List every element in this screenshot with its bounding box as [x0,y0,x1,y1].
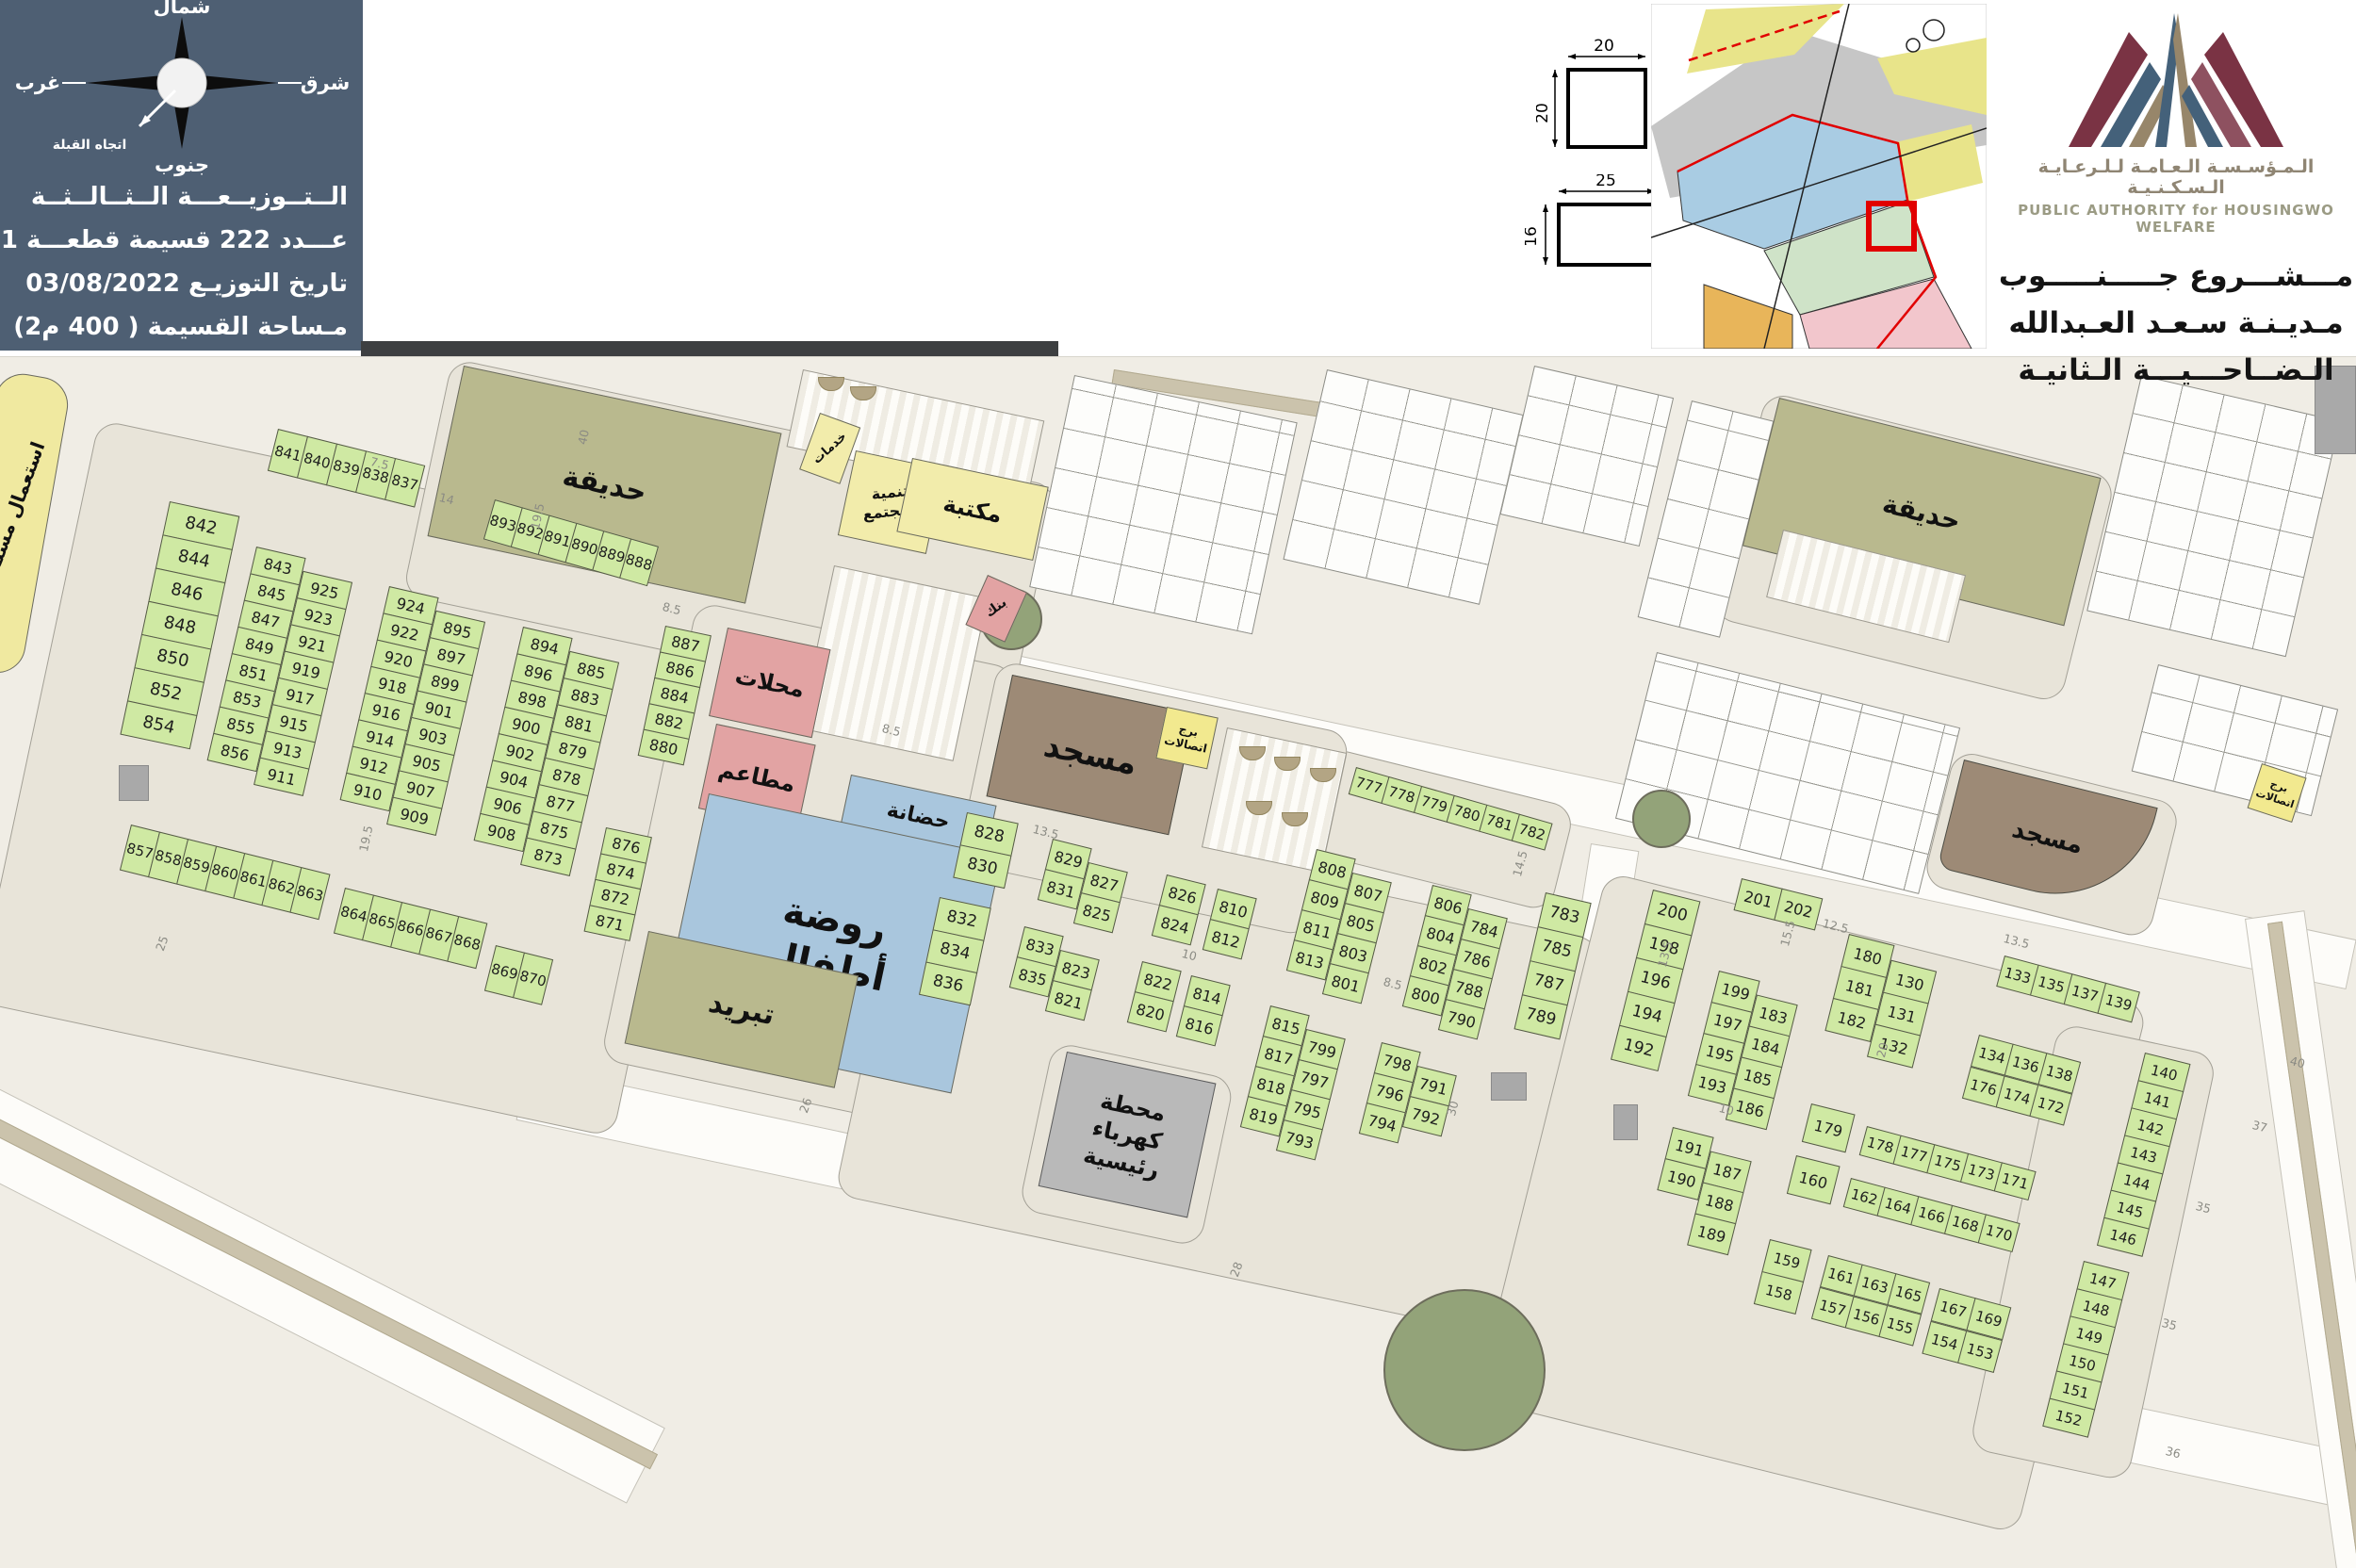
location-inset-map [1651,4,1987,349]
plot-dimension-square: 20 20 [1536,38,1659,160]
nursery-label: حضانة [884,797,952,836]
distribution-info-box: شمال شرق غرب جنوب اتجاه القبلة الــتــوز… [0,0,363,351]
utility-pad-2 [1491,1072,1527,1101]
svg-text:شمال: شمال [154,0,211,18]
telecom-tower-west-label: برجاتصالات [1163,720,1211,757]
distribution-date-line: تاريخ التوزيـع 03/08/2022 [15,262,348,305]
mosque-east-label: مسجد [2009,814,2086,861]
project-title-line3: الـضــاحـــيـــة الـثانيـة [1996,347,2356,394]
roundabout-east [1632,790,1691,848]
plot-area-line: مـساحة القسيمة ( 400 م2) [15,305,348,349]
svg-text:شرق: شرق [301,72,351,94]
pahw-logo-icon [2063,8,2289,149]
svg-text:25: 25 [1595,174,1616,190]
authority-name-en: PUBLIC AUTHORITY for HOUSINGWO WELFARE [1996,202,2356,236]
services-label: خدمات [810,430,850,468]
building-grid-1 [1029,375,1298,634]
svg-text:اتجاه القبلة: اتجاه القبلة [53,138,127,153]
svg-text:16: 16 [1525,226,1541,247]
telecom-tower-east-label: برجاتصالات [2254,775,2300,811]
restaurants-label: مطاعم [716,755,798,798]
svg-text:غرب: غرب [15,72,61,94]
mosque-west-label: مسجد [1040,726,1140,784]
project-title-line2: مـديـنـة سـعـد العـبدالله [1996,300,2356,347]
plot-count-line: عـــدد 222 قسيمة قطعـــة 1 [15,219,348,262]
library-label: مكتبة [941,489,1005,529]
utility-pad-3 [1613,1104,1638,1140]
project-title: مـــشـــروع جـــــنـــــوب مـديـنـة سـعـ… [1996,253,2356,394]
bank-label: بنك [982,596,1010,622]
authority-name-ar: الـمـؤسـسـة الـعـامـة لـلـرعـايـة الـسـك… [1996,156,2356,198]
project-title-line1: مـــشـــروع جـــــنـــــوب [1996,253,2356,300]
zone-telecom-tower-west: برجاتصالات [1155,707,1218,769]
park-east-label: حديقة [1879,486,1964,537]
header-band: شمال شرق غرب جنوب اتجاه القبلة الــتــوز… [0,0,2356,357]
shops-label: محلات [732,661,807,704]
roundabout-south [1383,1289,1546,1451]
distribution-title: الــتــوزيــعـــة الــثــالــثــة [15,175,348,219]
header-divider-bar [361,341,1058,356]
power-station-label: محطةكهرباءرئيسية [1081,1086,1173,1184]
authority-block: الـمـؤسـسـة الـعـامـة لـلـرعـايـة الـسـك… [1996,0,2356,351]
plot-dimension-rect: 25 16 [1525,174,1666,278]
distribution-info-lines: الــتــوزيــعـــة الــثــالــثــة عـــدد… [0,175,363,349]
cooling-label: تبريد [705,986,777,1034]
svg-text:20: 20 [1594,38,1614,56]
park-west-label: حديقة [560,459,650,511]
site-plan-page: استعمال مستقبلي حديقة خدمات تنميةالمجتمع… [0,0,2356,1568]
compass-rose-icon: شمال شرق غرب جنوب اتجاه القبلة [0,0,363,179]
svg-text:جنوب: جنوب [155,154,209,176]
svg-text:20: 20 [1536,103,1552,123]
utility-pad-1 [119,765,149,801]
